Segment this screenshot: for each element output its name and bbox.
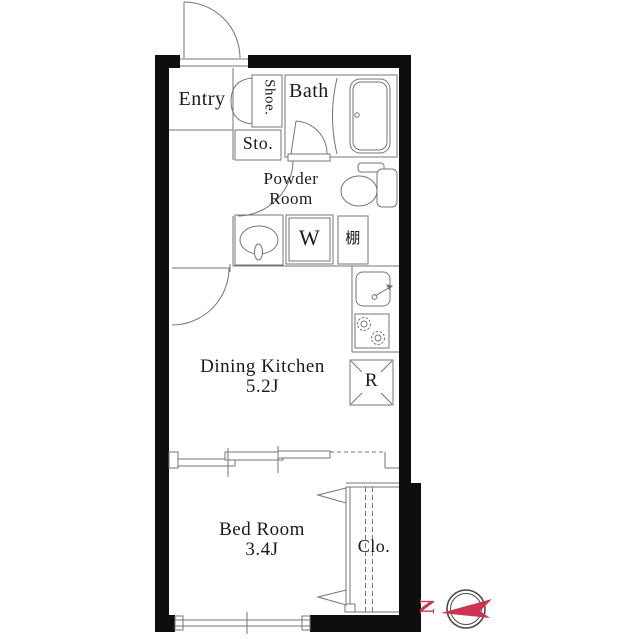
bath-label: Bath xyxy=(289,80,329,102)
entry-door-icon xyxy=(180,2,248,66)
stove-icon xyxy=(355,314,389,348)
floorplan-canvas: N Entry Shoe. Bath Sto. Powder Room W 棚 … xyxy=(0,0,640,639)
compass-north-label: N xyxy=(415,599,439,614)
kitchen-sink-icon xyxy=(356,272,392,306)
sliding-partition-icon xyxy=(169,446,399,477)
window-icon xyxy=(175,612,310,634)
dk-door-icon xyxy=(172,264,230,325)
shoe-cabinet-label: Shoe. xyxy=(242,89,296,113)
bathtub-icon xyxy=(350,79,390,153)
entry-label: Entry xyxy=(170,88,234,110)
compass-icon: N xyxy=(415,590,492,628)
shelf-label: 棚 xyxy=(338,231,368,248)
dining-kitchen-label: Dining Kitchen 5.2J xyxy=(180,357,345,397)
powder-room-label: Powder Room xyxy=(239,169,343,209)
storage-label: Sto. xyxy=(235,134,281,154)
bedroom-label: Bed Room 3.4J xyxy=(177,520,347,560)
bath-door-icon xyxy=(288,121,330,161)
washing-machine-label: W xyxy=(286,226,333,250)
refrigerator-label: R xyxy=(350,371,393,392)
toilet-icon xyxy=(341,163,397,207)
washbasin-icon xyxy=(235,215,283,265)
closet-label: Clo. xyxy=(348,537,400,557)
